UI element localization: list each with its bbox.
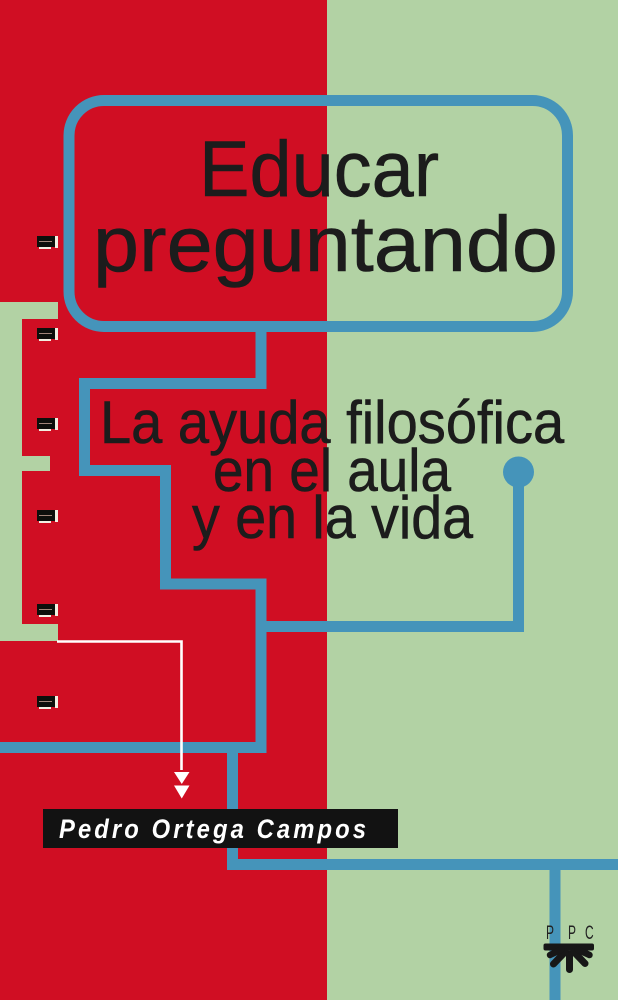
svg-text:C: C bbox=[585, 923, 594, 943]
svg-text:P: P bbox=[546, 923, 554, 943]
svg-text:P: P bbox=[568, 923, 576, 943]
